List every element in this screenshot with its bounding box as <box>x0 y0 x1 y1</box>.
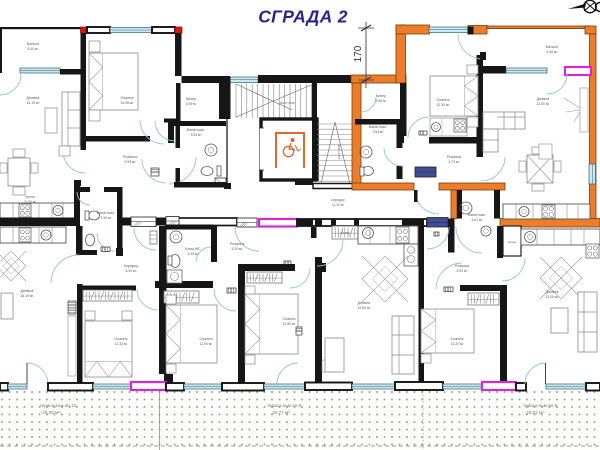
svg-text:Кухня: Кухня <box>25 195 34 199</box>
svg-text:4.73 м²: 4.73 м² <box>448 160 460 164</box>
svg-text:Ризалка: Ризалка <box>123 155 138 159</box>
svg-text:Спалня: Спалня <box>115 337 128 341</box>
svg-text:тераса към ап.10: тераса към ап.10 <box>40 403 77 408</box>
svg-text:170: 170 <box>353 45 364 62</box>
svg-text:Килер: Килер <box>340 231 349 235</box>
svg-text:11.90 м²: 11.90 м² <box>200 342 214 346</box>
svg-text:Дневна: Дневна <box>537 97 551 101</box>
svg-text:13.20 м²: 13.20 м² <box>451 342 465 346</box>
svg-text:4.90 м²: 4.90 м² <box>456 269 468 273</box>
svg-text:16.19 м²: 16.19 м² <box>27 101 41 105</box>
svg-text:Баня WC: Баня WC <box>185 247 201 251</box>
svg-text:2.40 м²: 2.40 м² <box>100 216 112 220</box>
svg-text:5.20 м²: 5.20 м² <box>231 247 243 251</box>
svg-text:СГРАДА 2: СГРАДА 2 <box>258 7 348 27</box>
svg-text:Дневна: Дневна <box>358 301 372 305</box>
svg-text:23.06 м²: 23.06 м² <box>546 295 560 299</box>
svg-text:22.50 м²: 22.50 м² <box>537 102 551 106</box>
svg-text:22.50 м²: 22.50 м² <box>358 306 372 310</box>
svg-text:Баня/тоал.: Баня/тоал. <box>468 213 486 217</box>
svg-text:Коридор: Коридор <box>124 264 139 268</box>
svg-text:Спалня: Спалня <box>437 98 450 102</box>
svg-text:тераса към ап.8: тераса към ап.8 <box>523 403 557 408</box>
svg-text:-28.62 м²-: -28.62 м²- <box>525 410 546 415</box>
svg-text:Балкон: Балкон <box>546 45 558 49</box>
svg-text:16х17,5/28: 16х17,5/28 <box>280 101 295 105</box>
svg-text:Баня/тоал.: Баня/тоал. <box>369 125 387 129</box>
svg-text:Ризалка: Ризалка <box>455 264 470 268</box>
svg-text:Килер: Килер <box>186 97 196 101</box>
svg-text:16х17,5/28: 16х17,5/28 <box>337 144 341 159</box>
svg-text:6.40 м²: 6.40 м² <box>546 50 558 54</box>
svg-text:2.65 м²: 2.65 м² <box>375 99 387 103</box>
svg-text:-29.08 м²-: -29.08 м²- <box>41 410 62 415</box>
svg-text:6.20 м²: 6.20 м² <box>125 269 137 273</box>
svg-text:Дневна: Дневна <box>21 289 35 293</box>
svg-text:11.42 м²: 11.42 м² <box>332 203 344 207</box>
svg-text:3.54 м²: 3.54 м² <box>190 133 202 137</box>
svg-text:Ризалка: Ризалка <box>230 242 245 246</box>
svg-text:Килер: Килер <box>508 240 517 244</box>
svg-text:Ризалка: Ризалка <box>447 155 462 159</box>
svg-text:тераса към ап.9: тераса към ап.9 <box>267 403 301 408</box>
svg-text:Спалня: Спалня <box>283 317 296 321</box>
svg-text:коридор: коридор <box>332 198 345 202</box>
svg-text:Спалня: Спалня <box>200 337 213 341</box>
svg-text:Дневна: Дневна <box>27 96 41 100</box>
svg-text:4.30 м²: 4.30 м² <box>187 252 199 256</box>
svg-text:16.19 м²: 16.19 м² <box>21 294 35 298</box>
svg-text:40.77 м²: 40.77 м² <box>272 410 290 415</box>
svg-text:Килер: Килер <box>376 94 386 98</box>
svg-text:Балкон: Балкон <box>27 42 39 46</box>
svg-text:Баня/тоал.: Баня/тоал. <box>97 211 115 215</box>
svg-text:3.54 м²: 3.54 м² <box>372 130 384 134</box>
svg-text:Спалня: Спалня <box>451 337 464 341</box>
svg-text:12.30 м²: 12.30 м² <box>437 103 451 107</box>
svg-text:5.93 м²: 5.93 м² <box>124 160 136 164</box>
svg-text:12.33 м²: 12.33 м² <box>115 342 129 346</box>
svg-text:14.08 м²: 14.08 м² <box>121 101 135 105</box>
svg-text:6.40 м²: 6.40 м² <box>27 47 39 51</box>
svg-text:Спалня: Спалня <box>121 96 134 100</box>
svg-text:2.05 м²: 2.05 м² <box>185 102 197 106</box>
svg-text:Баня/тоал.: Баня/тоал. <box>187 128 205 132</box>
svg-text:2.61 м²: 2.61 м² <box>471 218 483 222</box>
svg-text:12.80 м²: 12.80 м² <box>283 322 297 326</box>
svg-text:Дневна: Дневна <box>546 290 560 294</box>
